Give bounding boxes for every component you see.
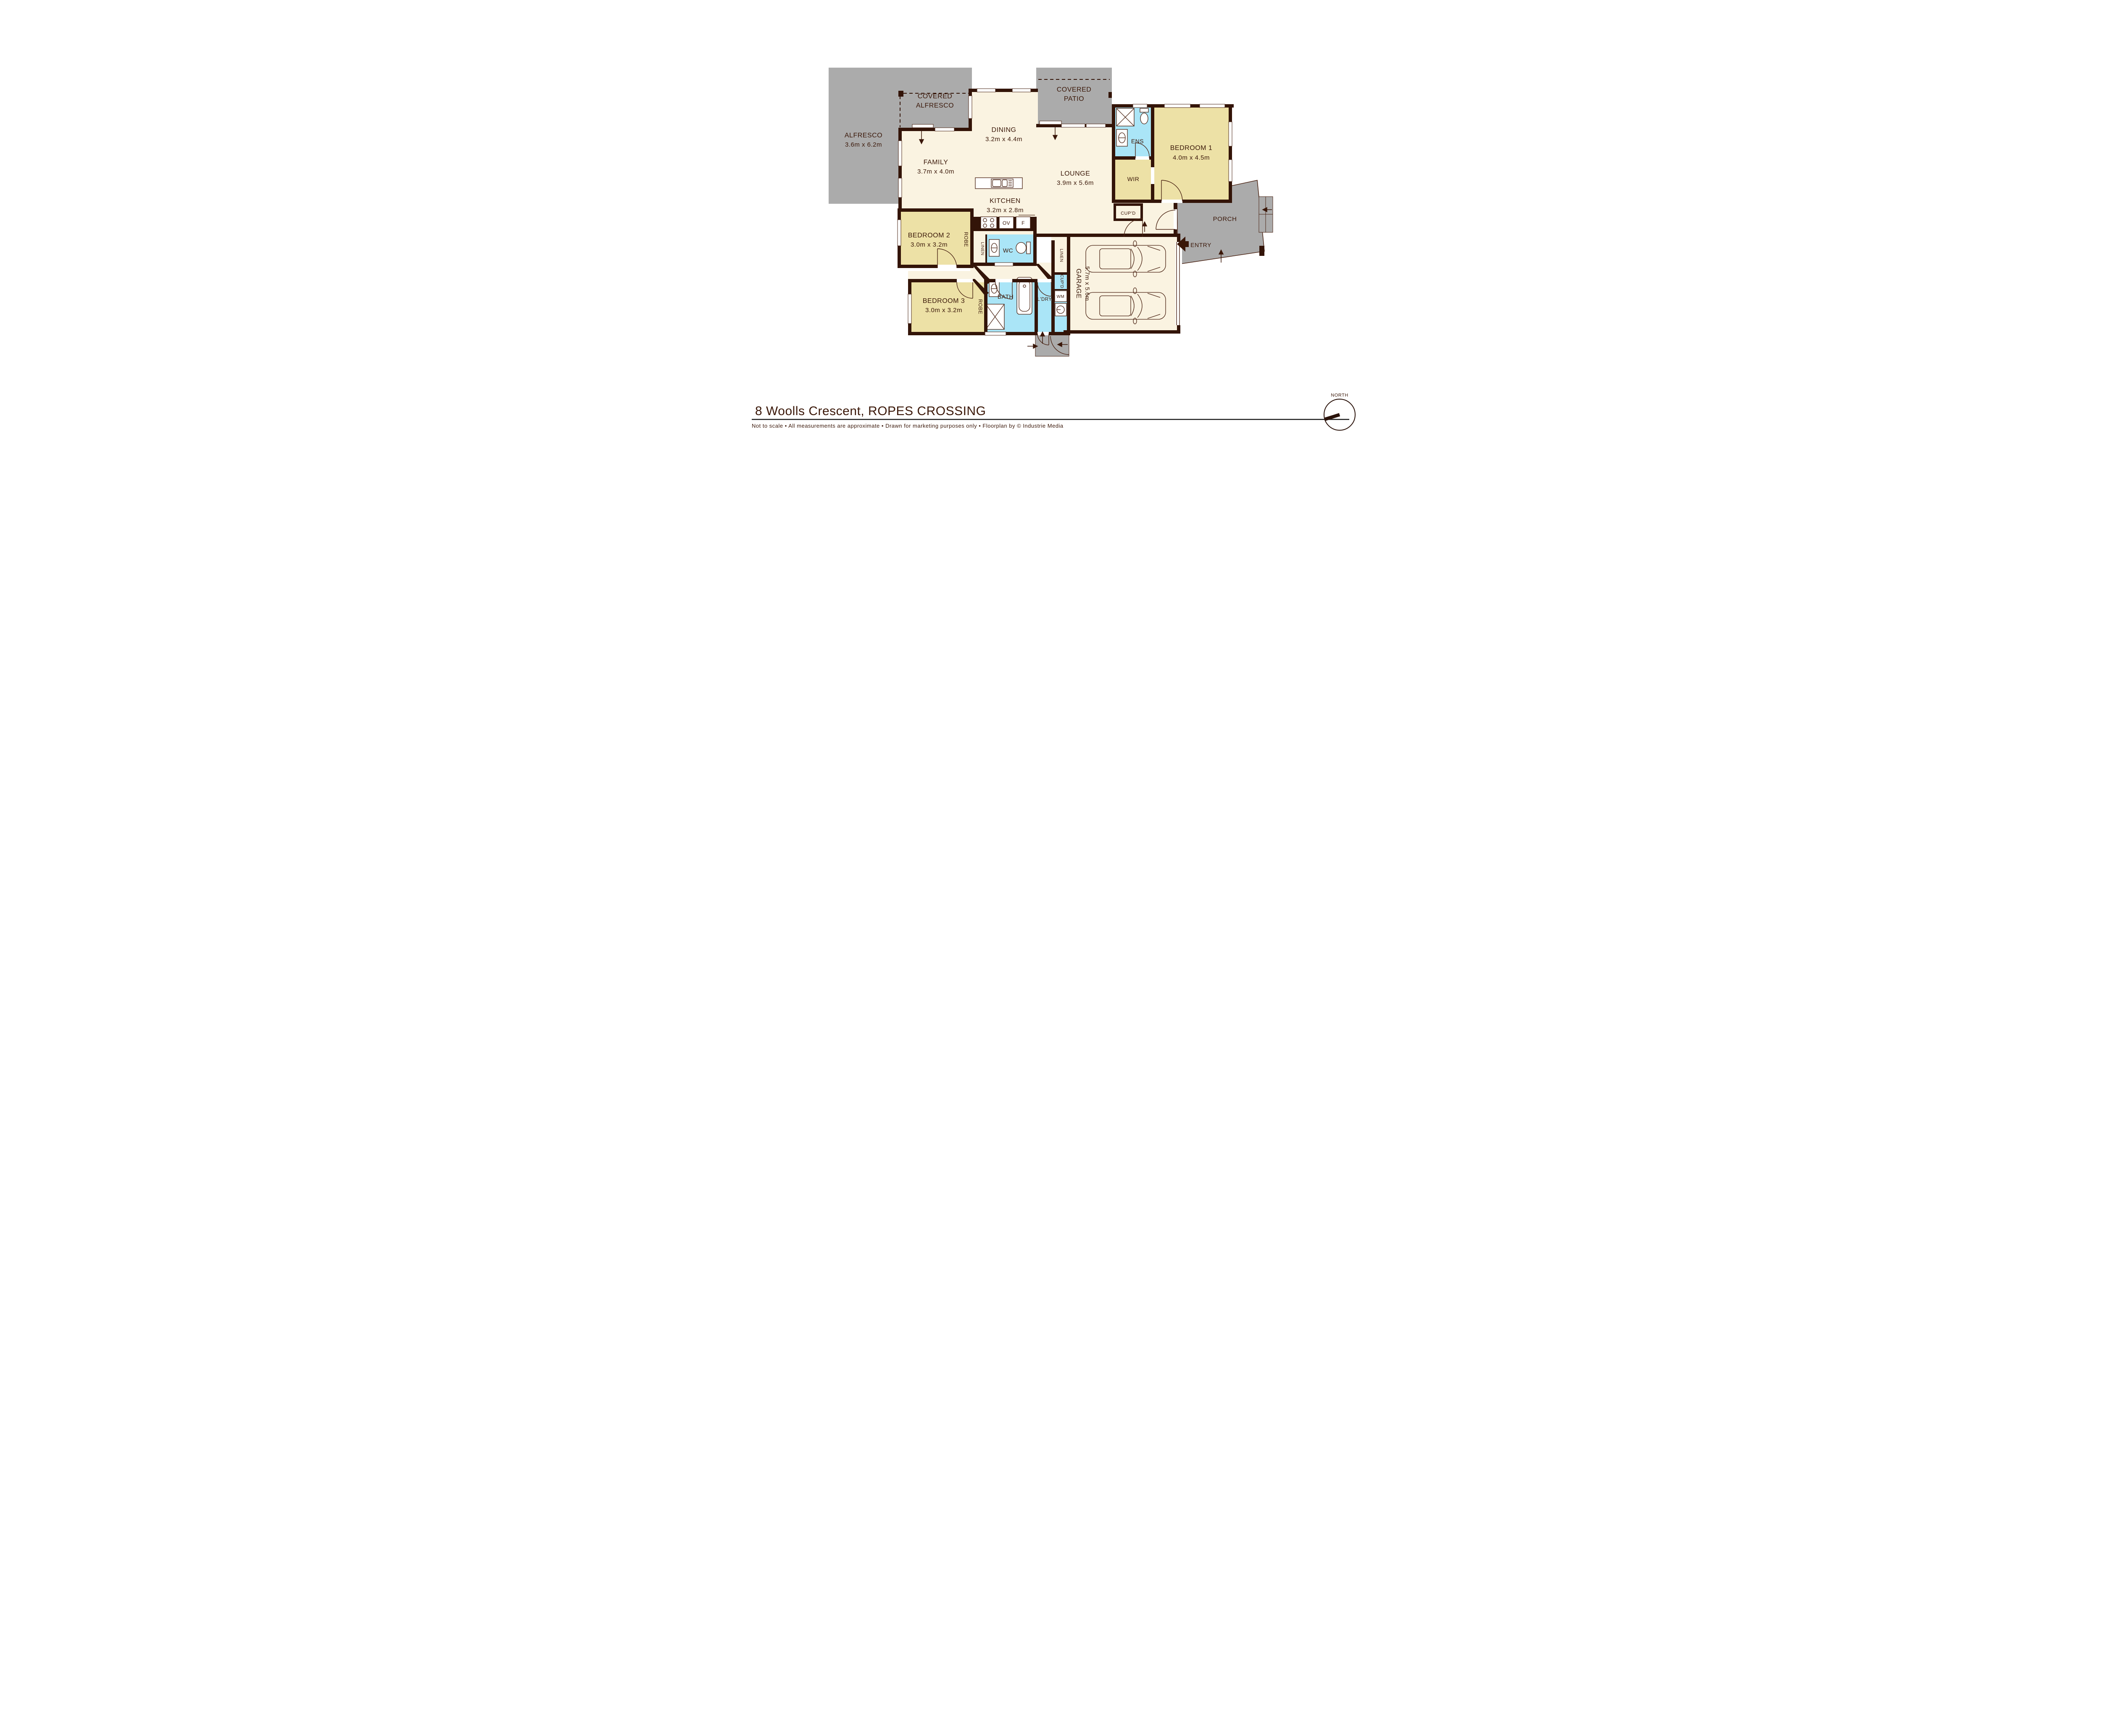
garage-label: GARAGE: [1075, 268, 1082, 298]
north-compass: NORTH: [1324, 393, 1355, 430]
robe-bed2-label: ROBE: [963, 232, 969, 247]
alfresco-label: ALFRESCO: [845, 132, 882, 139]
rear-patio-area: [1035, 334, 1069, 356]
cooktop: [981, 217, 997, 229]
footer-divider: [752, 419, 1349, 420]
fridge-label: F: [1022, 220, 1025, 226]
laundry-cupboard-label: CUP'D: [1059, 275, 1064, 289]
floorplan-page: ALFRESCO 3.6m x 6.2m COVERED ALFRESCO CO…: [743, 0, 1358, 434]
dining-label: DINING: [992, 126, 1016, 134]
bedroom1-label: BEDROOM 1: [1170, 145, 1213, 152]
bedroom3-dims: 3.0m x 3.2m: [925, 307, 962, 314]
north-needle-icon: [1325, 415, 1340, 419]
footer-disclaimer: Not to scale • All measurements are appr…: [752, 423, 1064, 429]
dining-dims: 3.2m x 4.4m: [985, 136, 1022, 143]
page-title: 8 Woolls Crescent, ROPES CROSSING: [755, 404, 986, 418]
washing-machine-label: WM: [1057, 295, 1065, 299]
wc-toilet-cistern: [1027, 242, 1030, 254]
ens-toilet-cistern: [1140, 108, 1148, 112]
kitchen-dims: 3.2m x 2.8m: [987, 207, 1024, 214]
garage-dims: 5.7m x 5.6m: [1084, 266, 1091, 301]
bedroom2-label: BEDROOM 2: [908, 232, 950, 239]
garage-door: [1175, 242, 1182, 325]
wc-toilet: [1016, 242, 1026, 253]
robe-bed3-label: ROBE: [977, 299, 983, 314]
alfresco-dims: 3.6m x 6.2m: [845, 141, 882, 148]
family-label: FAMILY: [924, 159, 948, 166]
entry-label: ENTRY: [1190, 242, 1211, 248]
covered-alfresco-label-1: COVERED: [918, 93, 953, 100]
linen-garage-label: LINEN: [1059, 249, 1064, 262]
bedroom3-label: BEDROOM 3: [923, 297, 965, 305]
bedroom1-dims: 4.0m x 4.5m: [1173, 154, 1210, 161]
covered-patio-label-1: COVERED: [1057, 86, 1092, 93]
hall-cupboard-label: CUP'D: [1121, 211, 1136, 216]
lounge-label: LOUNGE: [1061, 170, 1090, 177]
bedroom2-dims: 3.0m x 3.2m: [911, 241, 948, 248]
oven-label: OV: [1003, 220, 1010, 226]
kitchen-label: KITCHEN: [990, 197, 1021, 205]
covered-patio-label-2: PATIO: [1064, 95, 1084, 103]
wir-label: WIR: [1127, 176, 1140, 182]
covered-alfresco-label-2: ALFRESCO: [916, 102, 954, 109]
family-dims: 3.7m x 4.0m: [917, 168, 954, 175]
lounge-dims: 3.9m x 5.6m: [1057, 179, 1094, 187]
ens-label: ENS: [1131, 138, 1144, 145]
laundry-label: L'DRY: [1037, 297, 1052, 302]
porch-steps: [1259, 197, 1273, 232]
ens-toilet: [1140, 113, 1148, 124]
porch-label: PORCH: [1213, 216, 1237, 223]
bedroom1-floor: [1154, 108, 1229, 200]
bath-label: BATH: [998, 293, 1014, 300]
wc-label: WC: [1003, 247, 1013, 254]
floorplan-drawing: ALFRESCO 3.6m x 6.2m COVERED ALFRESCO CO…: [743, 0, 1358, 434]
linen-hall-label: LINEN: [980, 242, 985, 255]
north-label: NORTH: [1331, 393, 1348, 398]
